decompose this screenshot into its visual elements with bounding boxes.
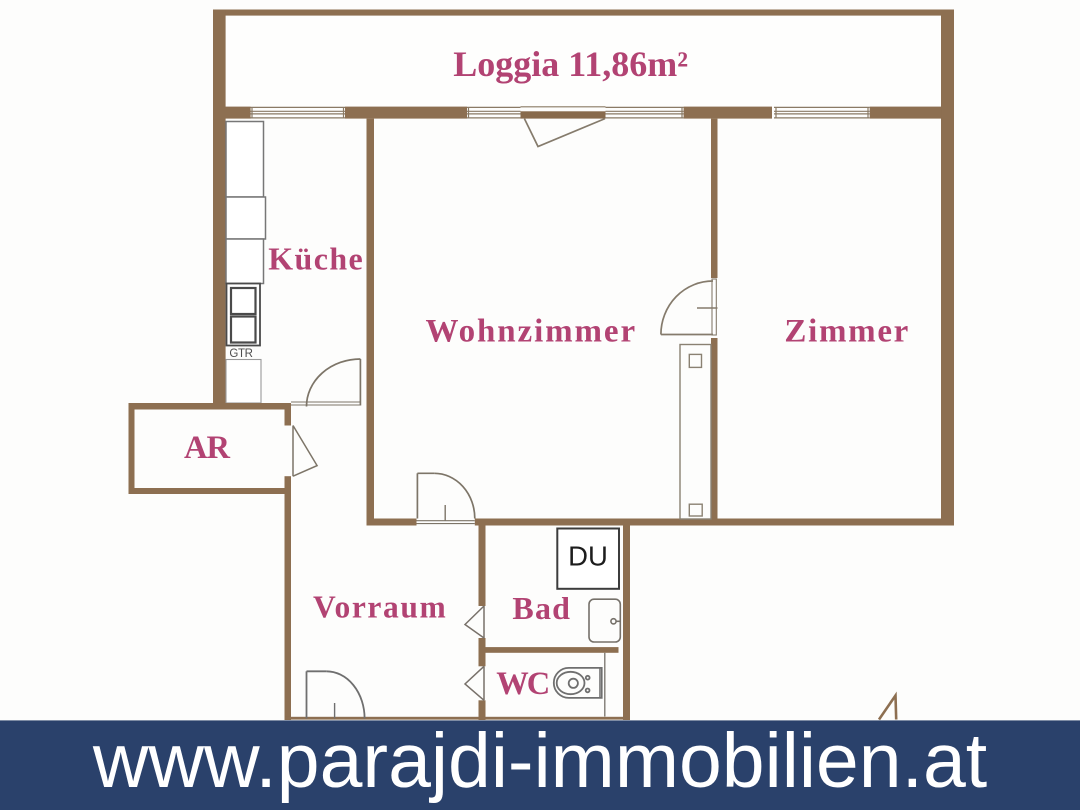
svg-text:Loggia 11,86m²: Loggia 11,86m² [453, 44, 688, 84]
svg-text:Zimmer: Zimmer [784, 314, 910, 350]
svg-text:WC: WC [496, 666, 548, 702]
svg-text:Küche: Küche [268, 240, 364, 276]
svg-text:Wohnzimmer: Wohnzimmer [426, 314, 637, 350]
svg-text:DU: DU [568, 541, 608, 572]
svg-text:www.parajdi-immobilien.at: www.parajdi-immobilien.at [92, 718, 987, 804]
svg-text:Vorraum: Vorraum [313, 590, 447, 625]
svg-text:Bad: Bad [512, 590, 571, 626]
svg-text:AR: AR [184, 430, 230, 466]
svg-text:GTR: GTR [229, 348, 252, 360]
